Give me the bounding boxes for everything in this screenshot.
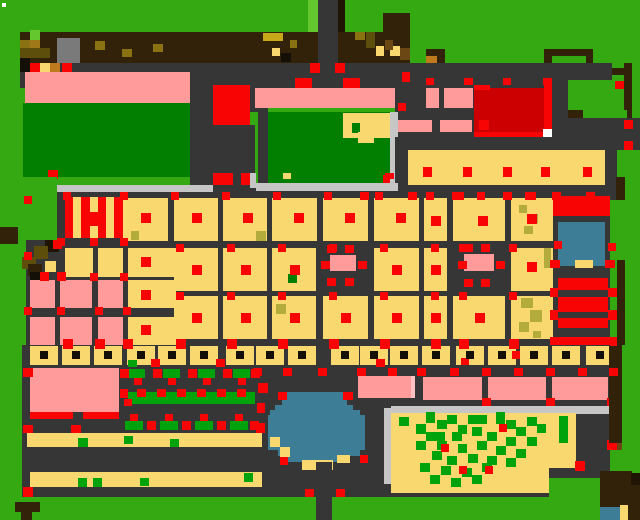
park-map-viewport [0,0,640,520]
park-map-canvas[interactable] [0,0,640,520]
